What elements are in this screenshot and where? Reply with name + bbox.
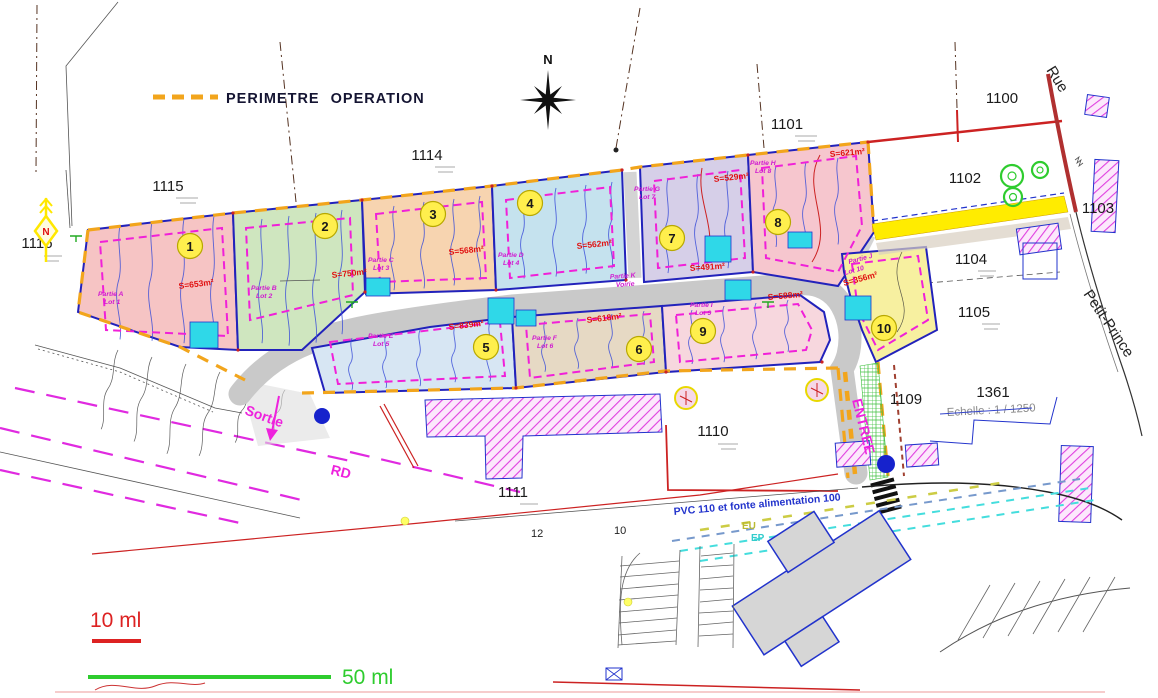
- parcel-number-1103: 1103: [1082, 200, 1114, 217]
- scale-bars: 10 ml 50 ml: [88, 609, 393, 690]
- north-marker-label: N: [42, 227, 49, 238]
- parcel-number-1114: 1114: [411, 147, 442, 164]
- lot-8-badge: 8: [766, 210, 791, 235]
- manhole-dot: [877, 455, 895, 473]
- subdivision-plan: 1115 1116 1114 1101 1100 1102 1103 1104 …: [0, 0, 1158, 698]
- projected-building: [788, 232, 812, 248]
- legend-perimeter-label: PERIMETRE OPERATION: [226, 91, 425, 107]
- parcel-number-1101: 1101: [771, 116, 803, 133]
- svg-text:9: 9: [699, 324, 706, 339]
- legend: PERIMETRE OPERATION: [153, 91, 425, 107]
- parcel-1110-boundary: [666, 425, 838, 491]
- lot-5-name: Lot 5: [373, 341, 389, 348]
- existing-building-1111: [425, 394, 662, 479]
- parcel-number-1104: 1104: [955, 251, 987, 268]
- svg-text:10: 10: [877, 321, 891, 336]
- projected-building: [488, 298, 514, 324]
- rue-road: [1048, 74, 1076, 212]
- lot-7-partie: Partie G: [634, 186, 661, 193]
- fence-symbol: [1075, 157, 1083, 166]
- parcel-boundary-red: [868, 121, 1062, 142]
- lot-10-badge: 10: [872, 316, 897, 341]
- lot-9-badge: 9: [691, 319, 716, 344]
- lot-4-badge: 4: [518, 191, 543, 216]
- lot-8-name: Lot 8: [755, 168, 771, 175]
- existing-building: [905, 443, 938, 467]
- point-10: 10: [614, 525, 626, 537]
- ep-label: EP: [751, 533, 765, 544]
- north-arrow: N: [35, 198, 57, 262]
- lot-3-name: Lot 3: [373, 265, 389, 272]
- scale-50ml-label: 50 ml: [342, 666, 393, 689]
- parcel-number-1109: 1109: [890, 391, 922, 408]
- lot-6-name: Lot 6: [537, 343, 553, 350]
- compass-north-label: N: [543, 52, 552, 67]
- lot-7-name: Lot 7: [639, 194, 656, 201]
- parcel-number-1102: 1102: [949, 170, 981, 187]
- projected-building: [516, 310, 536, 326]
- manhole-dot: [314, 408, 330, 424]
- svg-text:3: 3: [429, 207, 436, 222]
- projected-building: [705, 236, 731, 262]
- lot-8-partie: Partie H: [750, 160, 777, 167]
- lot-1-badge: 1: [178, 234, 203, 259]
- voirie-partie: Partie K: [610, 272, 637, 281]
- lot-9-partie: Partie I: [690, 302, 713, 309]
- projected-building: [725, 280, 751, 300]
- lot-9-name: Lot 9: [695, 310, 711, 317]
- compass-rose: N: [520, 52, 576, 130]
- lot-6-badge: 6: [627, 337, 652, 362]
- eu-label: EU: [742, 521, 756, 532]
- voirie-name: Voirie: [616, 281, 635, 289]
- svg-text:1: 1: [186, 239, 193, 254]
- compass-star: [520, 70, 576, 130]
- svg-text:4: 4: [526, 196, 534, 211]
- lots-layer: [78, 142, 937, 393]
- existing-building: [1085, 95, 1110, 118]
- point-12: 12: [531, 528, 543, 540]
- projected-building: [190, 322, 218, 348]
- svg-text:8: 8: [774, 215, 781, 230]
- parcel-number-1110: 1110: [697, 423, 728, 440]
- rd-label: RD: [329, 461, 353, 481]
- lot-4-name: Lot 4: [503, 260, 519, 267]
- petit-prince-label: Petit-Prince: [1080, 287, 1137, 361]
- parcel-number-1111: 1111: [498, 484, 528, 501]
- lot-2-name: Lot 2: [256, 293, 272, 300]
- svg-text:7: 7: [668, 231, 675, 246]
- svg-text:5: 5: [482, 340, 489, 355]
- lot-3-badge: 3: [421, 202, 446, 227]
- lot-2-partie: Partie B: [251, 285, 277, 292]
- lot-4-partie: Partie D: [498, 252, 524, 259]
- svg-text:2: 2: [321, 219, 328, 234]
- parcel-number-1105: 1105: [958, 304, 990, 321]
- lot-7-badge: 7: [660, 226, 685, 251]
- parcel-number-1361: 1361: [976, 384, 1009, 401]
- scale-10ml-label: 10 ml: [90, 609, 141, 632]
- lot-5-badge: 5: [474, 335, 499, 360]
- svg-text:6: 6: [635, 342, 642, 357]
- lot-5-partie: Partie E: [368, 333, 394, 340]
- existing-building: [1059, 445, 1094, 522]
- projected-building: [366, 278, 390, 296]
- parcel-number-1115: 1115: [152, 178, 183, 195]
- lot-3-partie: Partie C: [368, 257, 394, 264]
- existing-building: [1091, 159, 1119, 232]
- bottom-area: [55, 379, 1130, 692]
- lot-2-badge: 2: [313, 214, 338, 239]
- lot-1-name: Lot 1: [104, 299, 120, 306]
- lot-6-partie: Partie F: [532, 335, 558, 342]
- projected-building: [845, 296, 871, 320]
- lot-1-partie: Partie A: [98, 291, 124, 298]
- parcel-number-1100: 1100: [986, 90, 1018, 107]
